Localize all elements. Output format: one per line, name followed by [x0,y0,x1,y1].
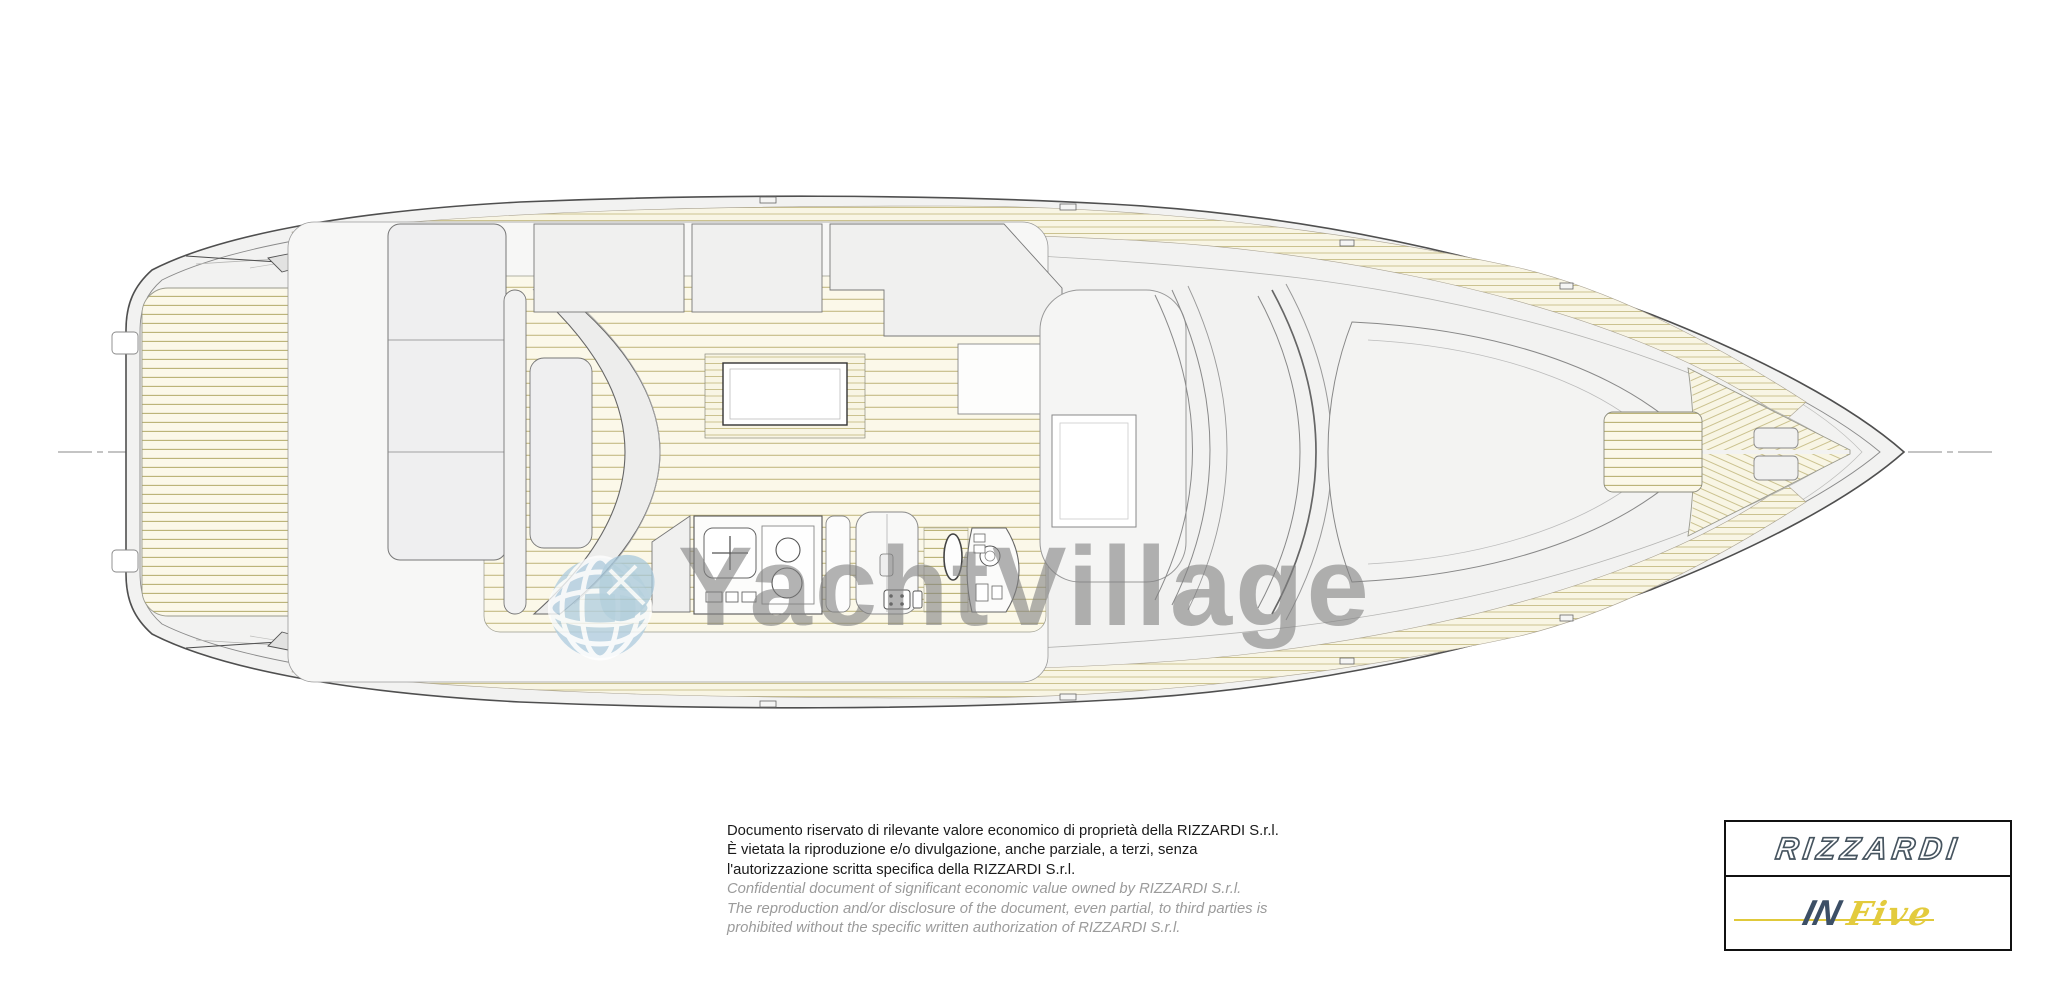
disclaimer-block: Documento riservato di rilevante valore … [727,822,1279,938]
disclaimer-line-en-3: prohibited without the specific written … [727,919,1279,938]
stern-step-notch [112,332,138,354]
galley-block [652,516,822,614]
disclaimer-line-it-1: Documento riservato di rilevante valore … [727,822,1279,841]
disclaimer-line-en-1: Confidential document of significant eco… [727,880,1279,899]
helm-station [924,528,1019,612]
model-name-text: Five [1844,894,1936,933]
page-canvas: YachtVillage Documento riservato di rile… [0,0,2048,983]
brand-wordmark: RIZZARDI [1773,831,1963,867]
throttle-panel [884,590,922,609]
cabin-skylight [1040,290,1186,582]
bow-step-pad [1604,412,1702,492]
model-wordmark: IN Five [1804,892,1932,934]
disclaimer-line-it-3: l'autorizzazione scritta specifica della… [727,861,1279,880]
cockpit-table [705,354,865,438]
model-prefix-text: IN [1799,892,1845,934]
disclaimer-line-en-2: The reproduction and/or disclosure of th… [727,900,1279,919]
stove-burner-small [776,538,800,562]
brand-logo-cell: RIZZARDI [1726,822,2010,877]
model-logo-cell: IN Five [1726,877,2010,949]
stove-burner-large [772,568,802,598]
brand-logo-box: RIZZARDI IN Five [1724,820,2012,951]
steering-wheel [944,534,962,580]
disclaimer-line-it-2: È vietata la riproduzione e/o divulgazio… [727,841,1279,860]
